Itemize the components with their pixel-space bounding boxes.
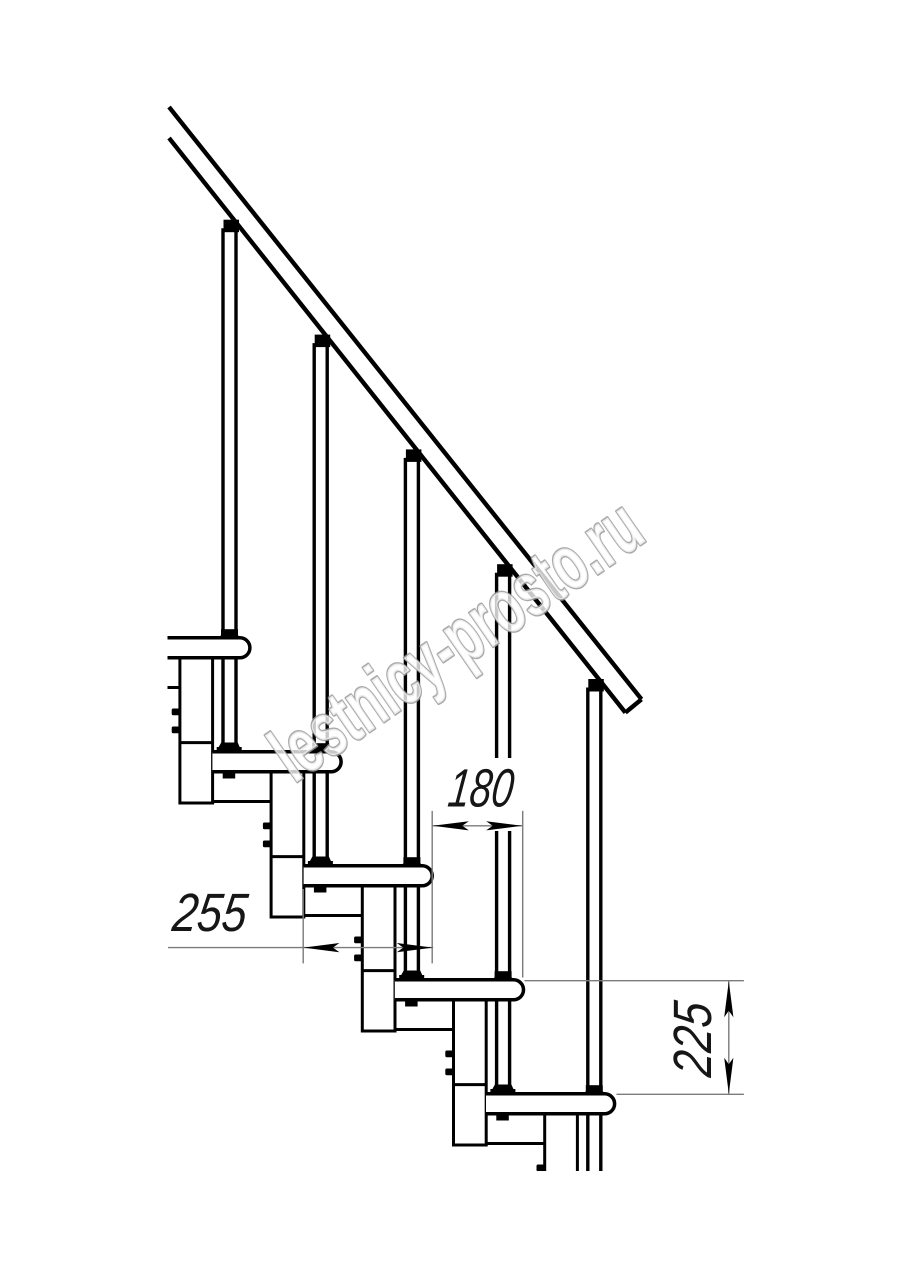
svg-text:225: 225 [662, 998, 723, 1081]
svg-text:255: 255 [169, 882, 252, 943]
svg-text:180: 180 [445, 759, 517, 820]
